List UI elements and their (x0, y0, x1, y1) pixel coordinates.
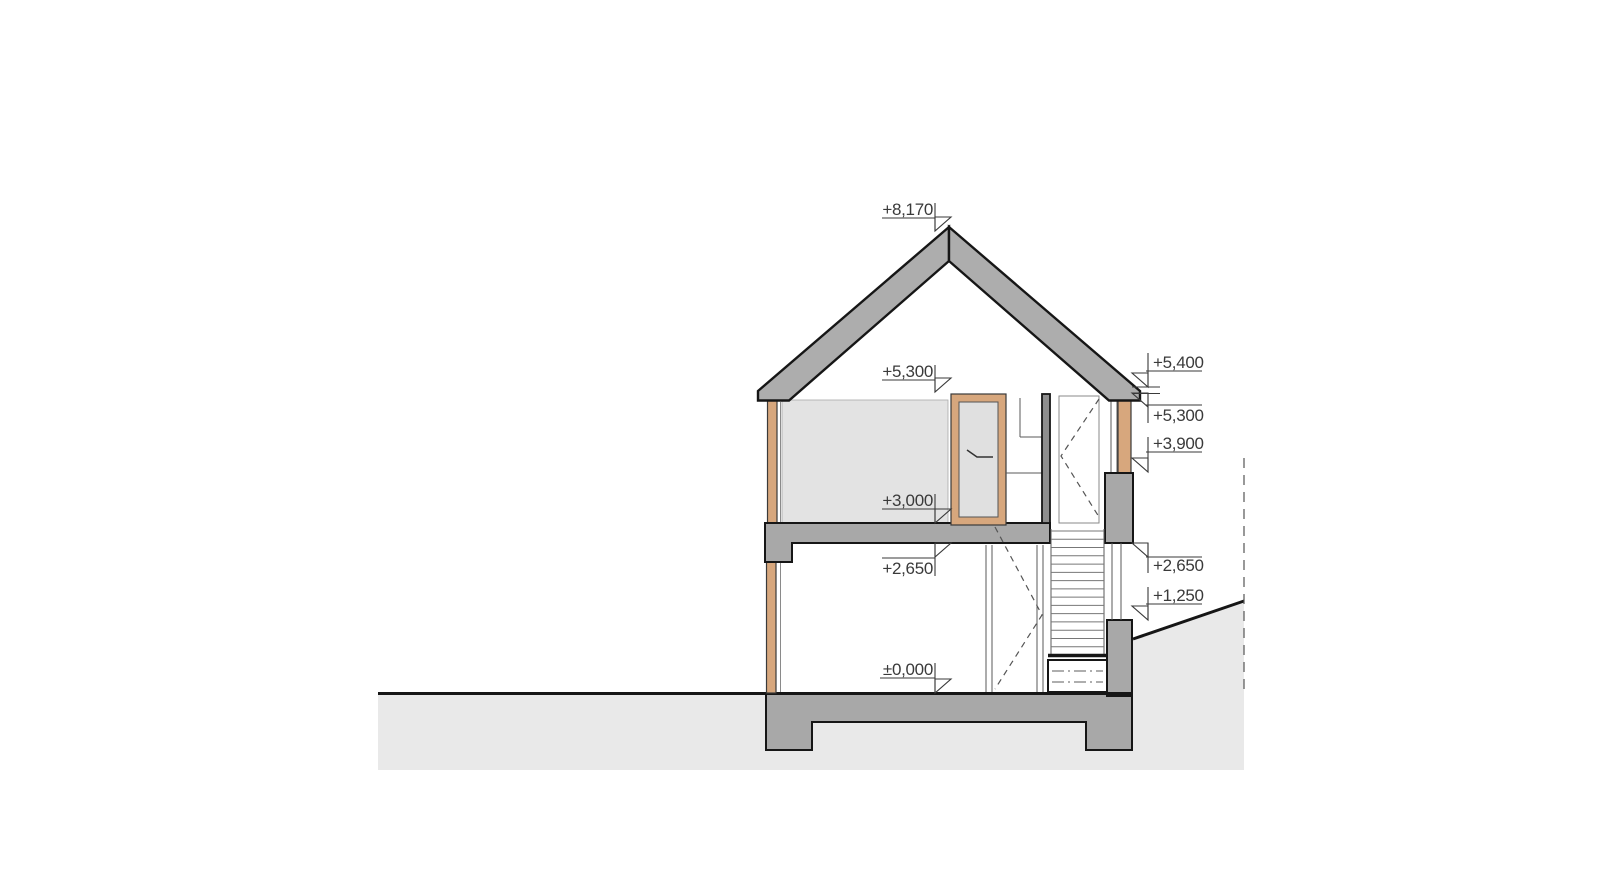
level-marker-gf-ceiling-right: +2,650 (1132, 543, 1204, 575)
staircase (1048, 529, 1107, 692)
section-drawing-canvas: +8,170 +5,300 +3,000 +2,650 ±0,000 +5,40… (0, 0, 1600, 883)
level-marker-ridge: +8,170 (882, 200, 951, 231)
gf-door-frames (986, 527, 1043, 692)
level-marker-wall-top-left: +5,300 (882, 362, 951, 392)
left-wall-timber-upper (768, 399, 778, 525)
level-marker-gf-ceiling-left: +2,650 (882, 543, 951, 578)
level-label: +5,400 (1153, 353, 1204, 372)
house-section-svg: +8,170 +5,300 +3,000 +2,650 ±0,000 +5,40… (0, 0, 1600, 883)
level-marker-gf-floor: ±0,000 (880, 660, 951, 693)
stair-base-box (1048, 660, 1107, 692)
level-marker-eave-bottom: +5,300 (1132, 393, 1204, 425)
right-wall-lintel-block (1105, 473, 1133, 543)
upper-stairwell-opening (1059, 396, 1099, 523)
door-swing-dashed-upper (1061, 399, 1099, 517)
level-label: +2,650 (1153, 556, 1204, 575)
level-label: +3,000 (882, 491, 933, 510)
level-label: +8,170 (882, 200, 933, 219)
roof-right-slope (949, 227, 1140, 401)
right-wall-upper (1105, 396, 1133, 620)
door-swing-dashed-gf (995, 527, 1042, 689)
level-label: +5,300 (882, 362, 933, 381)
level-label: ±0,000 (883, 660, 933, 679)
level-marker-lintel-top: +3,900 (1132, 434, 1204, 472)
right-basement-wall (1107, 620, 1132, 696)
upper-door (951, 394, 1006, 525)
level-marker-terrain: +1,250 (1132, 586, 1204, 620)
level-label: +2,650 (882, 559, 933, 578)
shelf-lines (1006, 398, 1042, 473)
level-label: +5,300 (1153, 406, 1204, 425)
stair-treads (1051, 531, 1104, 655)
central-partition-wall (1042, 394, 1050, 523)
right-wall-timber-post (1118, 396, 1131, 473)
upper-door-panel (959, 402, 998, 517)
level-marker-eave-top: +5,400 (1132, 353, 1204, 387)
left-wall-timber-lower (767, 562, 777, 693)
floor-slab (765, 523, 1050, 562)
level-label: +3,900 (1153, 434, 1204, 453)
level-label: +1,250 (1153, 586, 1204, 605)
